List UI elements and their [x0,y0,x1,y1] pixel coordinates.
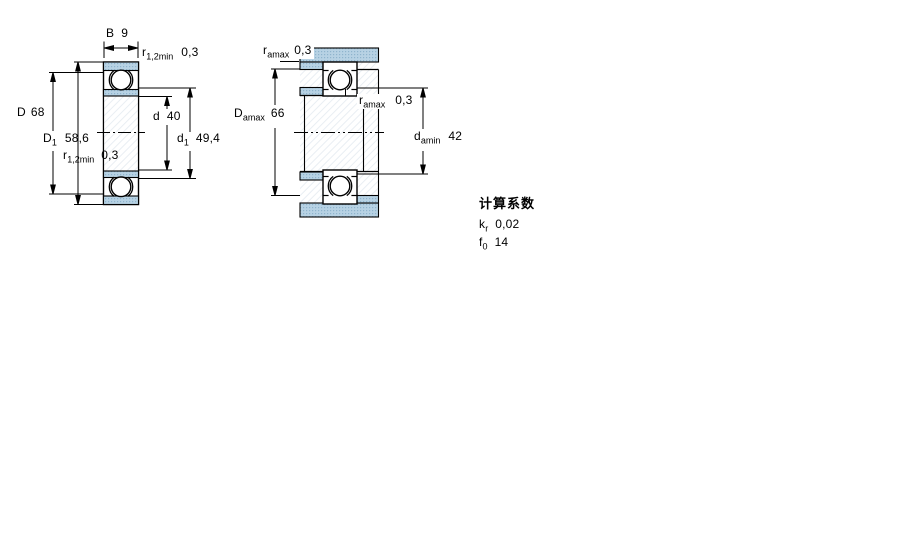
ball-top-right-view [330,70,350,90]
dim-label-r12min-top: r1,2min0,3 [142,46,199,61]
dim-label-ramax-mid: ramax0,3 [357,94,415,109]
dim-label-damin: damin42 [412,130,464,145]
right-view-mounted-section [294,48,384,217]
calc-factor-kr: kr0,02 [479,218,519,233]
calculation-factors-title: 计算系数 [479,193,535,212]
dim-label-D: D68 [17,106,45,121]
bearing-drawing-canvas: B9 r1,2min0,3 D68 D158,6 r1,2min0,3 d40 … [0,0,900,560]
dim-label-Damax: Damax66 [232,107,287,122]
housing-shoulder-top [300,62,323,70]
ball-bottom [111,177,131,197]
dim-label-d: d40 [151,110,183,125]
dim-label-D1: D158,6 [43,132,89,147]
dim-label-r12min-bottom: r1,2min0,3 [63,149,119,164]
dim-label-ramax-top: ramax0,3 [261,44,314,59]
housing-shoulder-bottom [357,196,379,204]
outer-ring-top-section [104,62,139,71]
left-view-bearing-section [97,62,145,205]
dim-label-d1: d149,4 [175,132,222,147]
shaft-shoulder-bottom [300,172,323,180]
shaft-shoulder-top [300,88,323,96]
calc-factor-f0: f014 [479,236,508,251]
ball-bottom-right-view [330,176,350,196]
ball-top [111,70,131,90]
drawing-linework [0,0,900,560]
dim-label-B: B9 [106,27,128,42]
housing-bottom-section [300,203,379,217]
